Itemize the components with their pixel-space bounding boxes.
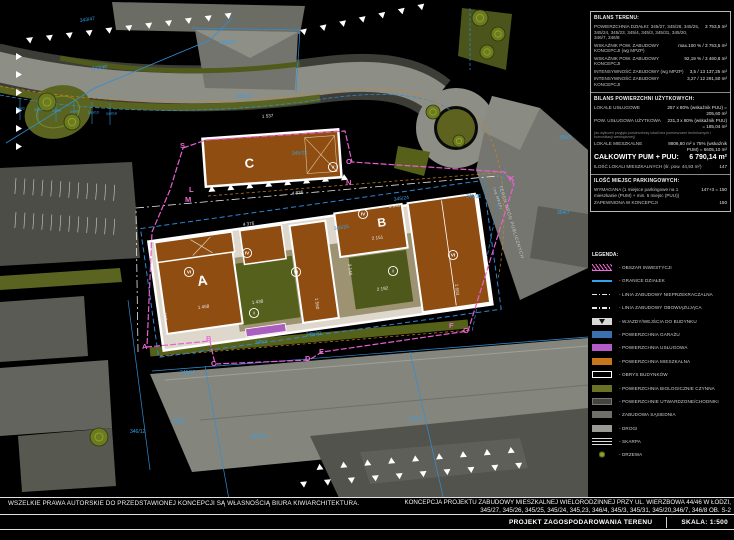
stat-value: 8806,80 m² x 75% (wskaźnik PUM) = 6605,1… <box>665 141 727 152</box>
legend-label: - LINIA ZABUDOWY NIEPRZEKRACZALNA <box>619 292 713 297</box>
parcel-label: 344/4 <box>34 108 43 112</box>
legend-item-skarpa: - SKARPA <box>592 438 732 445</box>
stat-value: max.100 % / 3 753,5 m² <box>678 43 727 54</box>
stat-label: LOKALE USŁUGOWE <box>594 105 661 116</box>
boundary-letter: G <box>463 326 469 335</box>
boundary-letter: K <box>509 174 515 183</box>
stat-label: WSKAŹNIK POW. ZABUDOWY KONCEPCJI <box>594 56 680 67</box>
units-row: ILOŚĆ LOKALI MIESZKALNYCH (śr. pow. 44,9… <box>594 164 727 170</box>
legend-label: - WJAZDY/WEJŚCIA DO BUDYNKU <box>619 319 697 324</box>
parcel-label: 344/8 <box>70 110 79 114</box>
legend-label: - OBSZAR INWESTYCJI <box>619 265 672 270</box>
bilans-puu-section: BILANS POWIERZCHNI UŻYTKOWYCH: LOKALE US… <box>591 92 730 175</box>
stat-label: WYMAGANA (1 miejsce parkingowe na 1 mies… <box>594 187 697 198</box>
boundary-letter: D <box>305 354 311 363</box>
parcel-label: 344/2 <box>16 107 25 111</box>
stat-label: INTENSYWNOŚĆ ZABUDOWY (wg MPZP) <box>594 69 686 75</box>
title-block-row1: WSZELKIE PRAWA AUTORSKIE DO PRZEDSTAWION… <box>0 498 734 514</box>
stat-row: WSKAŹNIK POW. ZABUDOWY KONCEPCJI92,19 % … <box>594 56 727 67</box>
legend-label: - SKARPA <box>619 439 641 444</box>
legend-item-drogi: - DROGI <box>592 425 732 432</box>
parcel-label: 346/12 <box>130 429 146 435</box>
boundary-letter: A <box>142 342 148 351</box>
storey-marker: VI <box>294 270 299 276</box>
service-swatch <box>592 344 612 351</box>
legend-item-linia-nieprzekraczalna: - LINIA ZABUDOWY NIEPRZEKRACZALNA <box>592 291 732 298</box>
bilans-terenu-title: BILANS TERENU: <box>594 15 727 21</box>
stat-label: ZAPEWNIONA W KONCEPCJI <box>594 200 715 206</box>
residential-swatch <box>592 358 612 365</box>
storey-marker: VI <box>451 253 456 259</box>
stat-row: WSKAŹNIK POW. ZABUDOWY KONCEPCJI (wg MPZ… <box>594 43 727 54</box>
stat-label: WSKAŹNIK POW. ZABUDOWY KONCEPCJI (wg MPZ… <box>594 43 674 54</box>
stat-label: INTENSYWNOŚĆ ZABUDOWY KONCEPCJI <box>594 76 683 87</box>
legend-label: - POWIERZCHNIA BIOLOGICZNIE CZYNNA <box>619 386 715 391</box>
boundary-letter: N <box>346 178 351 187</box>
stat-value: 3 753,5 m² <box>705 24 727 41</box>
legend-item-mieszkalna: - POWIERZCHNIA MIESZKALNA <box>592 358 732 365</box>
boundary-letter: F <box>449 321 454 330</box>
stat-row: INTENSYWNOŚĆ ZABUDOWY KONCEPCJI3,27 / 12… <box>594 76 727 87</box>
units-label: ILOŚĆ LOKALI MIESZKALNYCH (śr. pow. 44,9… <box>594 164 715 170</box>
legend-label: - LINIA ZABUDOWY OBOWIĄZUJĄCA <box>619 305 702 310</box>
bio-active-swatch <box>592 385 612 392</box>
entry-arrow-icon <box>592 318 612 325</box>
dimension-label: 1 537 <box>262 113 274 119</box>
legend-label: - OBRYS BUDYNKÓW <box>619 372 668 377</box>
total-label: CAŁKOWITY PUM + PUU: <box>594 154 685 163</box>
storey-marker: IV <box>361 212 366 218</box>
total-pum-puu-row: CAŁKOWITY PUM + PUU:6 790,14 m² <box>594 154 727 163</box>
legend-label: - ZABUDOWA SĄSIEDNIA <box>619 412 676 417</box>
units-value: 147 <box>719 164 727 170</box>
legend-item-drzewa: - DRZEWA <box>592 451 732 458</box>
slope-swatch <box>592 438 612 445</box>
bilans-terenu-section: BILANS TERENU: POWIERZCHNIA DZIAŁKI: 345… <box>591 12 730 92</box>
building-a-footprint <box>157 250 243 334</box>
legend-title: LEGENDA: <box>592 252 732 258</box>
project-title-block: KONCEPCJA PROJEKTU ZABUDOWY MIESZKALNEJ … <box>404 499 731 515</box>
legend-item-obrys: - OBRYS BUDYNKÓW <box>592 371 732 378</box>
building-c-label: C <box>244 155 255 171</box>
legend-item-wjazdy: - WJAZDY/WEJŚCIA DO BUDYNKU <box>592 318 732 325</box>
stats-box: BILANS TERENU: POWIERZCHNIA DZIAŁKI: 345… <box>590 11 731 212</box>
scale-label: SKALA: 1:500 <box>666 517 734 528</box>
parcel-label: 346/9 <box>409 416 422 423</box>
parcel-label: 346/19 <box>251 434 267 440</box>
parcel-label: 345/31 <box>466 194 482 200</box>
outline-swatch <box>592 371 612 378</box>
total-value: 6 790,14 m² <box>689 154 727 163</box>
dashdot-thick-line-swatch <box>592 304 612 311</box>
parcel-label: 346/4 <box>255 339 268 346</box>
stat-row: POWIERZCHNIA DZIAŁKI: 345/27, 345/26, 34… <box>594 24 727 41</box>
building-c-block <box>202 129 341 186</box>
project-title-line1: KONCEPCJA PROJEKTU ZABUDOWY MIESZKALNEJ … <box>404 499 731 507</box>
blue-line-swatch <box>592 277 612 284</box>
road-swatch <box>592 425 612 432</box>
stat-row: INTENSYWNOŚĆ ZABUDOWY (wg MPZP)3,5 / 13 … <box>594 69 727 75</box>
legend-item-obszar-inwestycji: - OBSZAR INWESTYCJI <box>592 264 732 271</box>
info-panel: BILANS TERENU: POWIERZCHNIA DZIAŁKI: 345… <box>588 0 734 497</box>
parking-title: ILOŚĆ MIEJSC PARKINGOWYCH: <box>594 178 727 184</box>
neighbor-swatch <box>592 411 612 418</box>
stat-row: LOKALE MIESZKALNE8806,80 m² x 75% (wskaź… <box>594 141 727 152</box>
tree-icon <box>592 451 612 458</box>
parcel-label: 354/7 <box>557 210 570 216</box>
drawing-title: PROJEKT ZAGOSPODAROWANIA TERENU <box>509 519 652 526</box>
parcel-label: 345/23 <box>292 150 308 157</box>
parcel-label: 346/17 <box>172 419 188 425</box>
project-title-line2: 345/27, 345/26, 345/25, 345/24, 345,23, … <box>404 507 731 515</box>
stat-label: POW. USŁUGOWA UŻYTKOWA <box>594 118 661 129</box>
legend-item-linia-obowiazujaca: - LINIA ZABUDOWY OBOWIĄZUJĄCA <box>592 304 732 311</box>
legend-item-garaz: - POWIERZCHNIA GARAŻU <box>592 331 732 338</box>
building-b-footprint <box>334 204 407 257</box>
legend-item-biologicznie-czynna: - POWIERZCHNIA BIOLOGICZNIE CZYNNA <box>592 385 732 392</box>
title-block-row2: PROJEKT ZAGOSPODAROWANIA TERENU SKALA: 1… <box>0 514 734 530</box>
legend-label: - DRZEWA <box>619 452 642 457</box>
legend-label: - DROGI <box>619 426 638 431</box>
parking-section: ILOŚĆ MIEJSC PARKINGOWYCH: WYMAGANA (1 m… <box>591 174 730 210</box>
boundary-letter: E <box>319 347 324 356</box>
legend-label: - POWIERZCHNIA GARAŻU <box>619 332 680 337</box>
legend-label: - GRANICE DZIAŁEK <box>619 278 665 283</box>
stat-row: POW. USŁUGOWA UŻYTKOWA231,3 x 80% (wskaź… <box>594 118 727 129</box>
stat-row: LOKALE USŁUGOWE257 x 80% (wskaźnik PUU) … <box>594 105 727 116</box>
boundary-letter: M <box>185 195 191 204</box>
stat-value: 231,3 x 80% (wskaźnik PUU) = 185,04 m² <box>665 118 727 129</box>
parcel-label: 344/10 <box>88 110 99 115</box>
legend-label: - POWIERZCHNIA MIESZKALNA <box>619 359 690 364</box>
stat-row: WYMAGANA (1 miejsce parkingowe na 1 mies… <box>594 187 727 198</box>
stat-row: ZAPEWNIONA W KONCEPCJI150 <box>594 200 727 206</box>
left-parking-lot <box>0 162 140 266</box>
site-plan-sheet: 343/47 343/48 343/22 345/19 345/23 345/2… <box>0 0 734 540</box>
stat-label: POWIERZCHNIA DZIAŁKI: 345/27, 345/26, 34… <box>594 24 701 41</box>
stat-value: 3,5 / 13 137,25 m² <box>690 69 727 75</box>
dashdot-line-swatch <box>592 291 612 298</box>
parcel-label: 344/16 <box>106 111 117 116</box>
stat-value: 150 <box>719 200 727 206</box>
stat-value: 147+3 = 150 <box>701 187 727 198</box>
boundary-letter: S <box>180 141 185 150</box>
garage-swatch <box>592 331 612 338</box>
stat-value: 257 x 80% (wskaźnik PUU) = 205,60 m² <box>665 105 727 116</box>
legend-label: - POWIERZCHNIE UTWARDZONE/CHODNIKI <box>619 399 719 404</box>
legend-item-uslugowa: - POWIERZCHNIA USŁUGOWA <box>592 344 732 351</box>
parcel-label: 344/6 <box>52 109 61 113</box>
boundary-letter: O <box>346 157 352 166</box>
hardscape-swatch <box>592 398 612 405</box>
boundary-letter: B <box>206 334 212 343</box>
stat-value: 3,27 / 12 291,50 m² <box>687 76 727 87</box>
legend-item-utwardzone: - POWIERZCHNIE UTWARDZONE/CHODNIKI <box>592 398 732 405</box>
parcel-label: 346/18 <box>180 370 196 376</box>
boundary-letter: C <box>211 359 217 368</box>
copyright-note: WSZELKIE PRAWA AUTORSKIE DO PRZEDSTAWION… <box>8 500 359 507</box>
storey-marker: VI <box>187 270 192 276</box>
parcel-label: 354/5 <box>559 135 572 141</box>
stat-note: (do wyliczeń przyjęto powierzchnię lokal… <box>594 131 727 139</box>
legend: LEGENDA: - OBSZAR INWESTYCJI - GRANICE D… <box>592 252 732 465</box>
stat-value: 92,19 % / 3 460,8 m² <box>684 56 727 67</box>
storey-marker: IV <box>245 251 250 257</box>
legend-item-zabudowa-sasiednia: - ZABUDOWA SĄSIEDNIA <box>592 411 732 418</box>
legend-item-granice-dzialek: - GRANICE DZIAŁEK <box>592 277 732 284</box>
parcel-label: 343/22 <box>220 40 236 46</box>
bilans-puu-title: BILANS POWIERZCHNI UŻYTKOWYCH: <box>594 96 727 102</box>
hatch-pink-swatch <box>592 264 612 271</box>
parcel-label: 345/19 <box>236 94 252 100</box>
plan-drawing: 343/47 343/48 343/22 345/19 345/23 345/2… <box>0 0 588 497</box>
title-block: WSZELKIE PRAWA AUTORSKIE DO PRZEDSTAWION… <box>0 497 734 540</box>
legend-label: - POWIERZCHNIA USŁUGOWA <box>619 345 688 350</box>
stat-label: LOKALE MIESZKALNE <box>594 141 661 152</box>
boundary-letter: L <box>189 185 194 194</box>
